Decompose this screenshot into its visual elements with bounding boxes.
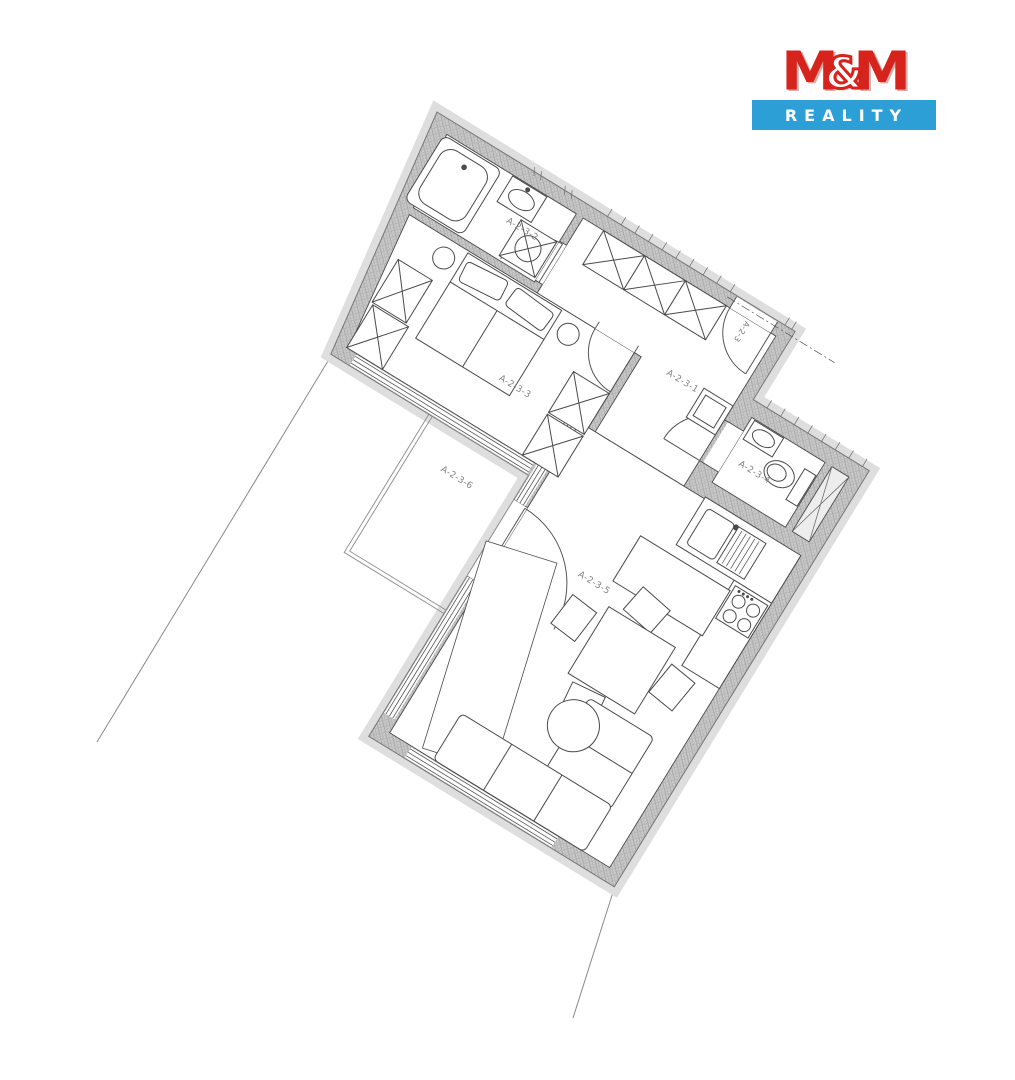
logo-subtitle-bar: REALITY	[752, 100, 936, 130]
logo-ampersand: &	[825, 52, 863, 96]
logo-brand-row: M & M	[752, 42, 936, 100]
boundary-line-west	[97, 356, 331, 742]
floor-plan-page: A-2-3-1 A-2-3-2 A-2-3-3 A-2-3-4 A-2-3-5 …	[0, 0, 1015, 1080]
boundary-line-south	[573, 889, 614, 1018]
mm-reality-logo: M & M REALITY	[752, 42, 936, 130]
floor-plan-drawing: A-2-3-1 A-2-3-2 A-2-3-3 A-2-3-4 A-2-3-5 …	[0, 0, 1015, 1080]
building: A-2-3-1 A-2-3-2 A-2-3-3 A-2-3-4 A-2-3-5 …	[140, 104, 916, 886]
label-terrace: A-2-3-6	[439, 465, 475, 492]
